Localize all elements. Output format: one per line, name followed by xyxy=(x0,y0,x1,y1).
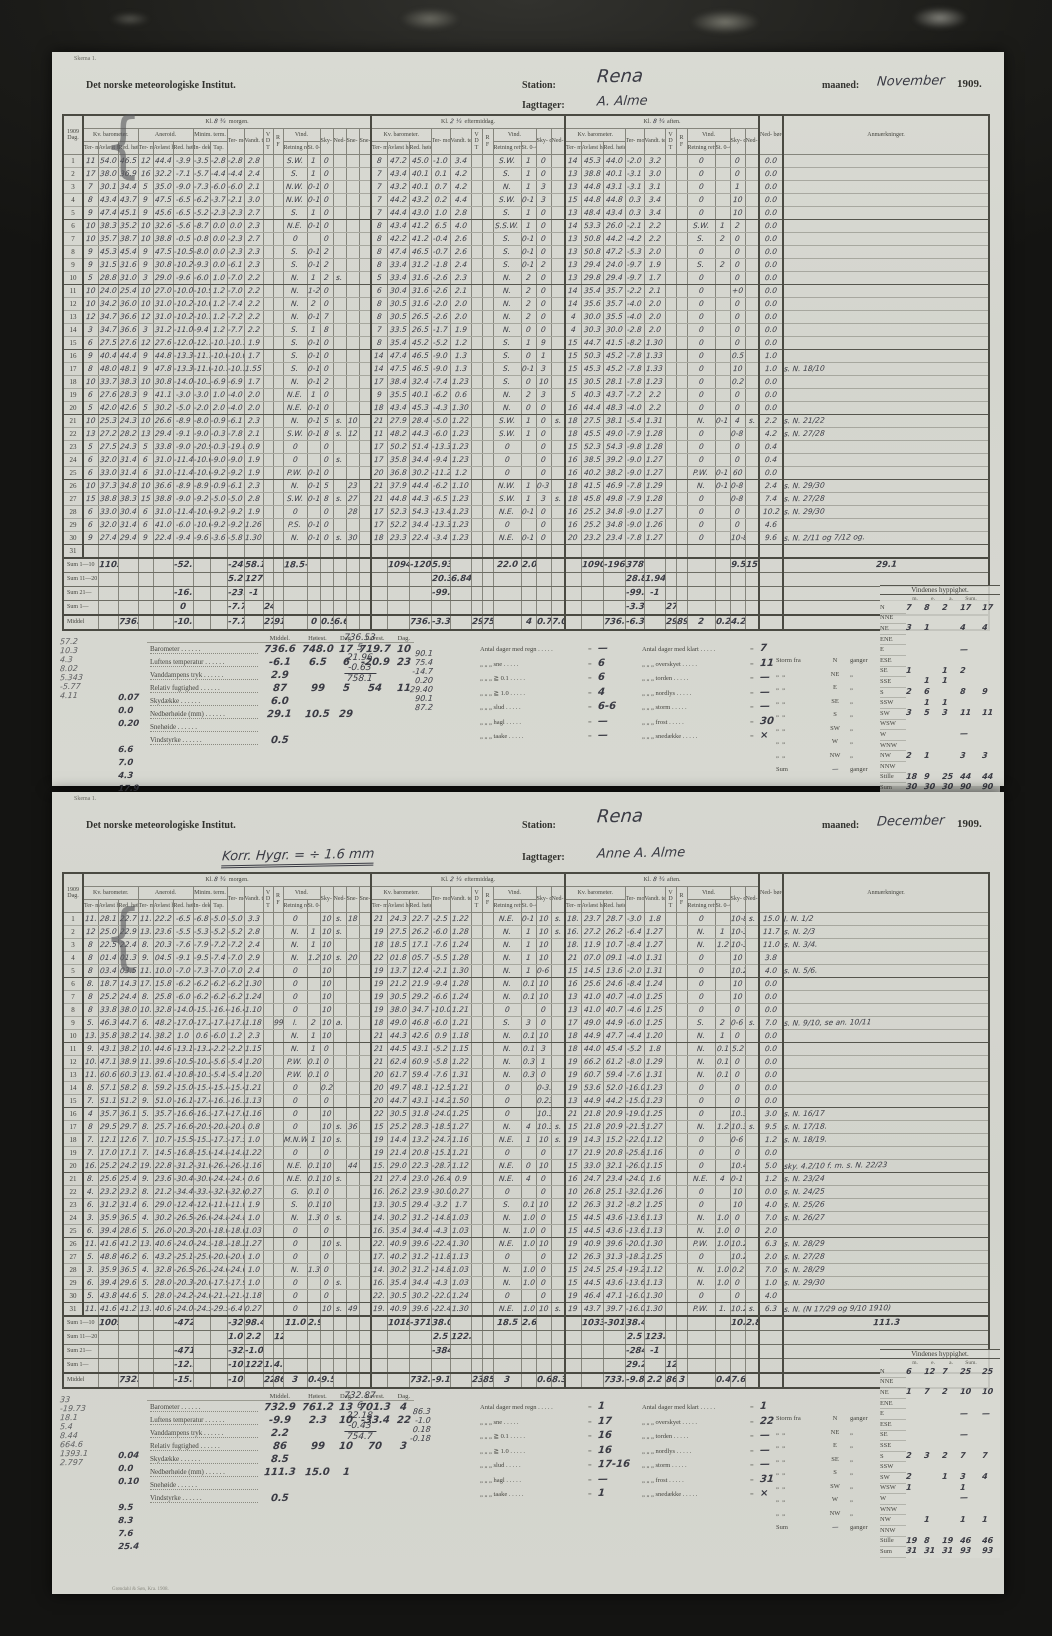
obs-cell: 43.4 xyxy=(387,168,409,181)
obs-cell xyxy=(263,155,273,168)
sum-cell xyxy=(346,558,359,573)
remark-cell xyxy=(783,376,989,389)
obs-cell xyxy=(263,1095,273,1108)
obs-cell: 1.24 xyxy=(450,939,471,952)
obs-cell: 7 xyxy=(371,207,387,220)
obs-cell xyxy=(745,207,759,220)
obs-cell: 44.5 xyxy=(581,1212,603,1225)
obs-cell: 31.2 xyxy=(409,1212,431,1225)
obs-cell: 48.8 xyxy=(98,1251,118,1264)
obs-cell xyxy=(482,1095,493,1108)
obs-cell xyxy=(676,337,687,350)
obs-cell: 0-8 xyxy=(730,480,745,493)
obs-cell: 0-1 xyxy=(307,493,320,506)
obs-cell xyxy=(676,1108,687,1121)
obs-cell: 17 xyxy=(565,1017,581,1030)
obs-cell: 0-1 xyxy=(521,246,536,259)
sum-row-label: Sum 1— xyxy=(63,601,98,616)
obs-cell: 8 xyxy=(371,311,387,324)
obs-cell: 2.1 xyxy=(644,285,665,298)
obs-cell: -19.8 xyxy=(227,441,244,454)
obs-cell: 9. xyxy=(138,1173,153,1186)
obs-cell: -28.7 xyxy=(431,1160,450,1173)
obs-cell: 46.9 xyxy=(603,480,625,493)
obs-cell: -18.5 xyxy=(431,1121,450,1134)
obs-cell: 38.3 xyxy=(118,493,138,506)
obs-cell xyxy=(273,272,283,285)
sum-cell xyxy=(307,573,320,587)
wind-frequency-row: NNW xyxy=(880,761,1000,772)
sum-cell xyxy=(551,1331,565,1345)
obs-cell: 13 xyxy=(83,428,98,441)
obs-cell: s. xyxy=(333,1277,346,1290)
obs-cell: 0.0 xyxy=(759,233,783,246)
obs-cell: -1.0 xyxy=(431,155,450,168)
obs-cell: 0 xyxy=(320,1212,333,1225)
sum-cell xyxy=(644,558,665,573)
sum-cell xyxy=(359,587,371,601)
day-number: 20 xyxy=(63,1160,83,1173)
obs-cell xyxy=(551,1004,565,1017)
obs-cell: 25.4 xyxy=(118,1173,138,1186)
sum-cell xyxy=(283,573,307,587)
obs-cell: 40.1 xyxy=(409,389,431,402)
sum-cell xyxy=(173,573,193,587)
obs-cell: 1.28 xyxy=(644,428,665,441)
obs-cell: 0 xyxy=(687,506,715,519)
obs-cell: 52.3 xyxy=(581,441,603,454)
sum-cell xyxy=(320,1316,333,1331)
obs-cell: -5.7 xyxy=(193,168,210,181)
obs-cell: 1.9 xyxy=(644,259,665,272)
obs-cell xyxy=(482,168,493,181)
obs-cell: 2.2 xyxy=(244,272,263,285)
obs-cell: S. xyxy=(493,337,521,350)
day-number: 18 xyxy=(63,1134,83,1147)
group-header: Sky- dæk- ke. 0–10. xyxy=(320,129,333,155)
obs-cell: S. xyxy=(493,259,521,272)
day-number: 6 xyxy=(63,220,83,233)
obs-cell: 41.2 xyxy=(409,233,431,246)
sum-cell xyxy=(371,1345,387,1359)
obs-cell xyxy=(273,454,283,467)
obs-cell: 66.2 xyxy=(581,1056,603,1069)
obs-cell: 2.9 xyxy=(244,952,263,965)
group-header: Vandt. term. eller hygrom. xyxy=(244,887,263,913)
sum-cell: 0.6 xyxy=(536,1373,551,1388)
obs-cell: 23.2 xyxy=(98,1186,118,1199)
obs-cell: 1 xyxy=(307,168,320,181)
obs-cell: N. xyxy=(687,926,715,939)
obs-cell xyxy=(346,1004,359,1017)
obs-cell: 16. xyxy=(83,1160,98,1173)
sum-cell xyxy=(346,1331,359,1345)
sum-cell: -472.0 xyxy=(173,1316,193,1331)
sum-cell xyxy=(244,601,263,616)
sum-cell xyxy=(471,1316,482,1331)
day-number: 9 xyxy=(63,259,83,272)
obs-cell xyxy=(471,467,482,480)
obs-cell: 0.0 xyxy=(759,220,783,233)
obs-cell: 18. xyxy=(565,913,581,926)
sum-cell xyxy=(482,1331,493,1345)
sum-cell xyxy=(676,601,687,616)
obs-cell: 1.0 xyxy=(759,363,783,376)
obs-cell xyxy=(676,441,687,454)
obs-cell: -16.1 xyxy=(173,1095,193,1108)
obs-cell: 0 xyxy=(687,1147,715,1160)
remark-cell xyxy=(783,285,989,298)
obs-cell: 25.4 xyxy=(603,1264,625,1277)
obs-cell xyxy=(346,978,359,991)
sub-header: Avlæst høide. xyxy=(581,900,603,913)
obs-cell xyxy=(482,952,493,965)
obs-cell xyxy=(676,233,687,246)
obs-cell: 2 xyxy=(521,272,536,285)
obs-cell: -20.9 xyxy=(193,1121,210,1134)
obs-cell: -14.2 xyxy=(431,1095,450,1108)
obs-cell: 0 xyxy=(536,428,551,441)
obs-cell xyxy=(603,545,625,559)
sum-cell: -3.3 xyxy=(431,615,450,630)
obs-cell: N. xyxy=(493,285,521,298)
obs-cell: 0 xyxy=(320,1225,333,1238)
obs-cell: N. xyxy=(283,939,307,952)
obs-cell: 40.4 xyxy=(98,350,118,363)
obs-cell xyxy=(551,194,565,207)
obs-cell: 8 xyxy=(371,298,387,311)
obs-cell: -7.2 xyxy=(227,311,244,324)
obs-cell xyxy=(665,285,676,298)
obs-cell: -7.2 xyxy=(625,389,644,402)
obs-cell: 1.16 xyxy=(450,1134,471,1147)
obs-cell: 43.2 xyxy=(153,1251,173,1264)
obs-cell: 2.0 xyxy=(644,324,665,337)
obs-cell xyxy=(551,1043,565,1056)
col-day-header: 1909Dag. xyxy=(63,115,83,155)
obs-cell: 10.28 xyxy=(730,1238,745,1251)
obs-cell xyxy=(551,1225,565,1238)
obs-cell xyxy=(745,337,759,350)
obs-cell xyxy=(359,324,371,337)
obs-cell: 1.9 xyxy=(244,467,263,480)
remark-cell xyxy=(783,991,989,1004)
obs-cell: 0 xyxy=(536,1225,551,1238)
obs-cell: 2.0 xyxy=(244,402,263,415)
obs-cell: 7 xyxy=(320,311,333,324)
obs-cell: -6.5 xyxy=(173,913,193,926)
obs-cell xyxy=(715,493,730,506)
sub-header: Tap. xyxy=(210,142,227,155)
obs-cell xyxy=(482,363,493,376)
obs-cell xyxy=(273,1082,283,1095)
obs-cell: 1.21 xyxy=(450,1082,471,1095)
obs-cell xyxy=(346,1056,359,1069)
sum-cell: 3 xyxy=(493,1373,521,1388)
obs-cell: 0-1 xyxy=(521,259,536,272)
obs-cell: 39.2 xyxy=(603,454,625,467)
obs-cell xyxy=(665,1082,676,1095)
stat-row: Snehøide . . . . . . xyxy=(147,1479,414,1492)
obs-cell: 1.13 xyxy=(644,1277,665,1290)
obs-cell: 5. xyxy=(138,1277,153,1290)
obs-cell xyxy=(745,1186,759,1199)
obs-cell: -10.0 xyxy=(431,1004,450,1017)
obs-cell: -9.4 xyxy=(193,324,210,337)
obs-cell: 0 xyxy=(687,978,715,991)
sum-cell xyxy=(98,615,118,630)
sum-cell xyxy=(359,1359,371,1374)
sub-header: Ter- mom. xyxy=(371,142,387,155)
obs-cell: 0 xyxy=(536,233,551,246)
day-number: 29 xyxy=(63,519,83,532)
obs-cell: -21.4 xyxy=(227,1290,244,1303)
sum-cell xyxy=(493,573,521,587)
obs-cell: 0-8 xyxy=(730,493,745,506)
obs-cell: 34.7 xyxy=(98,324,118,337)
obs-cell: 1.26 xyxy=(644,1186,665,1199)
sub-header: Ter- mom. xyxy=(371,900,387,913)
obs-cell: 19 xyxy=(565,1069,581,1082)
obs-cell: 10 xyxy=(320,1303,333,1317)
obs-cell xyxy=(521,1095,536,1108)
obs-cell: N. xyxy=(493,272,521,285)
obs-cell: 0 xyxy=(687,965,715,978)
sum-cell xyxy=(493,601,521,616)
obs-cell: 1.0 xyxy=(521,1264,536,1277)
obs-cell: 30.3 xyxy=(581,324,603,337)
sum-cell xyxy=(244,615,263,630)
sum-cell xyxy=(320,587,333,601)
sum-cell xyxy=(482,1345,493,1359)
obs-cell xyxy=(471,1147,482,1160)
obs-cell: 0 xyxy=(730,259,745,272)
obs-cell: 0.0 xyxy=(227,220,244,233)
wind-frequency-row: NE3144 xyxy=(880,624,1000,635)
obs-cell: 8. xyxy=(83,1082,98,1095)
obs-cell: 47.1 xyxy=(603,1290,625,1303)
obs-cell: 43.1 xyxy=(603,181,625,194)
obs-cell: -3.0 xyxy=(625,913,644,926)
obs-cell: 05.7 xyxy=(409,952,431,965)
sum-cell xyxy=(644,1359,665,1374)
obs-cell xyxy=(273,532,283,545)
obs-cell xyxy=(551,441,565,454)
obs-cell: 1.25 xyxy=(644,1004,665,1017)
sum-cell xyxy=(387,601,409,616)
sum-cell xyxy=(346,573,359,587)
obs-cell: 29.7 xyxy=(118,1121,138,1134)
obs-cell: 99 xyxy=(273,1017,283,1030)
sum-cell xyxy=(730,587,745,601)
obs-cell: 0 xyxy=(730,1095,745,1108)
obs-cell: 41.2 xyxy=(118,1303,138,1317)
sum-cell xyxy=(283,1331,307,1345)
obs-cell: 10 xyxy=(138,220,153,233)
sum-cell xyxy=(759,1331,783,1345)
sum-cell xyxy=(193,1331,210,1345)
obs-cell: 32.4 xyxy=(409,376,431,389)
remark-cell: s. N. 27/28 xyxy=(783,1251,989,1264)
obs-cell: 2 xyxy=(521,311,536,324)
obs-cell xyxy=(482,376,493,389)
obs-cell: N. xyxy=(687,1121,715,1134)
obs-cell: 31.4 xyxy=(118,1199,138,1212)
obs-cell: 0 xyxy=(536,298,551,311)
obs-cell: 2 xyxy=(320,259,333,272)
obs-cell: -2.8 xyxy=(625,324,644,337)
obs-cell: 1.0 xyxy=(244,1251,263,1264)
obs-cell xyxy=(471,926,482,939)
obs-cell xyxy=(715,1290,730,1303)
obs-cell: 1.28 xyxy=(644,441,665,454)
obs-cell: 1.30 xyxy=(450,1238,471,1251)
obs-cell: 28.3 xyxy=(409,1121,431,1134)
obs-cell: -2.1 xyxy=(227,194,244,207)
obs-cell: N. xyxy=(687,1264,715,1277)
obs-cell xyxy=(359,259,371,272)
obs-cell xyxy=(482,506,493,519)
obs-cell xyxy=(715,965,730,978)
obs-cell: 0 xyxy=(536,467,551,480)
obs-cell: 13. xyxy=(138,1303,153,1317)
obs-cell xyxy=(263,1225,273,1238)
obs-cell xyxy=(359,1004,371,1017)
group-header: RF xyxy=(676,129,687,155)
obs-cell: -7.8 xyxy=(625,350,644,363)
obs-cell: 2.2 xyxy=(644,389,665,402)
obs-cell xyxy=(482,441,493,454)
sub-header: Ter- mom. xyxy=(83,900,98,913)
obs-cell xyxy=(263,1030,273,1043)
obs-cell: -2.2 xyxy=(227,1043,244,1056)
obs-cell xyxy=(745,454,759,467)
obs-cell: 9.5 xyxy=(759,1121,783,1134)
obs-cell xyxy=(665,506,676,519)
obs-cell xyxy=(263,1277,273,1290)
sum-cell xyxy=(307,1359,320,1374)
obs-cell xyxy=(551,363,565,376)
obs-cell: 24.3 xyxy=(118,441,138,454)
obs-cell: -24.6 xyxy=(227,1264,244,1277)
obs-cell: -4.0 xyxy=(227,389,244,402)
obs-cell: 0 xyxy=(536,1017,551,1030)
obs-cell: 43.4 xyxy=(387,220,409,233)
sum-cell: 29 xyxy=(471,615,482,630)
obs-cell xyxy=(263,1186,273,1199)
obs-cell: P.W. xyxy=(283,1069,307,1082)
obs-cell xyxy=(676,181,687,194)
obs-cell xyxy=(482,350,493,363)
obs-cell xyxy=(307,1303,320,1317)
obs-cell: 0 xyxy=(320,285,333,298)
obs-cell: -2.3 xyxy=(210,207,227,220)
obs-cell: 0.1 xyxy=(307,1056,320,1069)
obs-cell: 1 xyxy=(521,480,536,493)
obs-cell xyxy=(333,519,346,532)
obs-cell: 21.2 xyxy=(387,978,409,991)
obs-cell: 1.16 xyxy=(244,1160,263,1173)
obs-cell: 0.0 xyxy=(759,376,783,389)
obs-cell: 15 xyxy=(565,965,581,978)
obs-cell: N. xyxy=(687,1030,715,1043)
obs-cell: 10 xyxy=(536,1134,551,1147)
obs-cell: 19 xyxy=(565,1290,581,1303)
obs-cell xyxy=(482,246,493,259)
obs-cell: 0.0 xyxy=(759,168,783,181)
obs-cell xyxy=(359,1082,371,1095)
obs-cell xyxy=(625,545,644,559)
obs-cell xyxy=(359,207,371,220)
obs-cell: 1.3 xyxy=(450,350,471,363)
obs-cell: -14.8 xyxy=(227,1147,244,1160)
sum-cell xyxy=(521,1373,536,1388)
obs-cell: 30.5 xyxy=(581,376,603,389)
sum-row-label: Sum 1— xyxy=(63,1359,98,1374)
obs-cell: 11.7 xyxy=(759,926,783,939)
sum-cell xyxy=(521,587,536,601)
obs-cell xyxy=(273,965,283,978)
obs-cell: N. xyxy=(687,1043,715,1056)
obs-cell: 20 xyxy=(371,1069,387,1082)
obs-cell: 25.1 xyxy=(603,1186,625,1199)
obs-cell: -7.1 xyxy=(173,168,193,181)
station-label: Station: xyxy=(522,80,556,91)
col-nedbormaaler-header: Ned- bør- maa- ler. xyxy=(759,115,783,155)
obs-cell: 25.3 xyxy=(98,415,118,428)
obs-cell xyxy=(715,1004,730,1017)
obs-cell xyxy=(676,480,687,493)
obs-cell: -16.0 xyxy=(625,1082,644,1095)
obs-cell: -11.4 xyxy=(173,467,193,480)
obs-cell: s. xyxy=(333,1212,346,1225)
obs-cell: 51.1 xyxy=(98,1095,118,1108)
obs-cell: -6.1 xyxy=(227,480,244,493)
obs-cell: S.W. xyxy=(493,428,521,441)
obs-cell: 1.9 xyxy=(244,337,263,350)
obs-cell: -9.0 xyxy=(625,506,644,519)
sum-cell xyxy=(371,587,387,601)
obs-cell: 44.3 xyxy=(409,493,431,506)
obs-cell: 1.21 xyxy=(450,1147,471,1160)
sum-cell xyxy=(665,587,676,601)
obs-cell: 13 xyxy=(565,233,581,246)
obs-cell: 1.25 xyxy=(644,991,665,1004)
obs-cell: -16.6 xyxy=(173,1121,193,1134)
sum-cell xyxy=(431,601,450,616)
obs-cell: 0 xyxy=(730,233,745,246)
obs-cell: s. xyxy=(333,926,346,939)
obs-cell xyxy=(471,415,482,428)
obs-cell: 27.5 xyxy=(98,337,118,350)
obs-cell: 13 xyxy=(565,246,581,259)
obs-cell: 4 xyxy=(83,1108,98,1121)
obs-cell: 0.0 xyxy=(759,1069,783,1082)
obs-cell: 11. xyxy=(83,1303,98,1317)
obs-cell xyxy=(715,311,730,324)
obs-cell: 47.8 xyxy=(153,363,173,376)
obs-cell: 10. xyxy=(83,1056,98,1069)
sub-header: St. 0–6. xyxy=(307,142,320,155)
obs-cell: -26.0 xyxy=(625,1160,644,1173)
obs-cell: 7. xyxy=(83,1134,98,1147)
obs-cell: 31.2 xyxy=(409,1251,431,1264)
obs-cell: S.W. xyxy=(493,415,521,428)
obs-cell: 48.0 xyxy=(98,363,118,376)
obs-cell: 47.2 xyxy=(603,246,625,259)
sum-cell: -99.3 xyxy=(625,587,644,601)
obs-cell xyxy=(273,337,283,350)
